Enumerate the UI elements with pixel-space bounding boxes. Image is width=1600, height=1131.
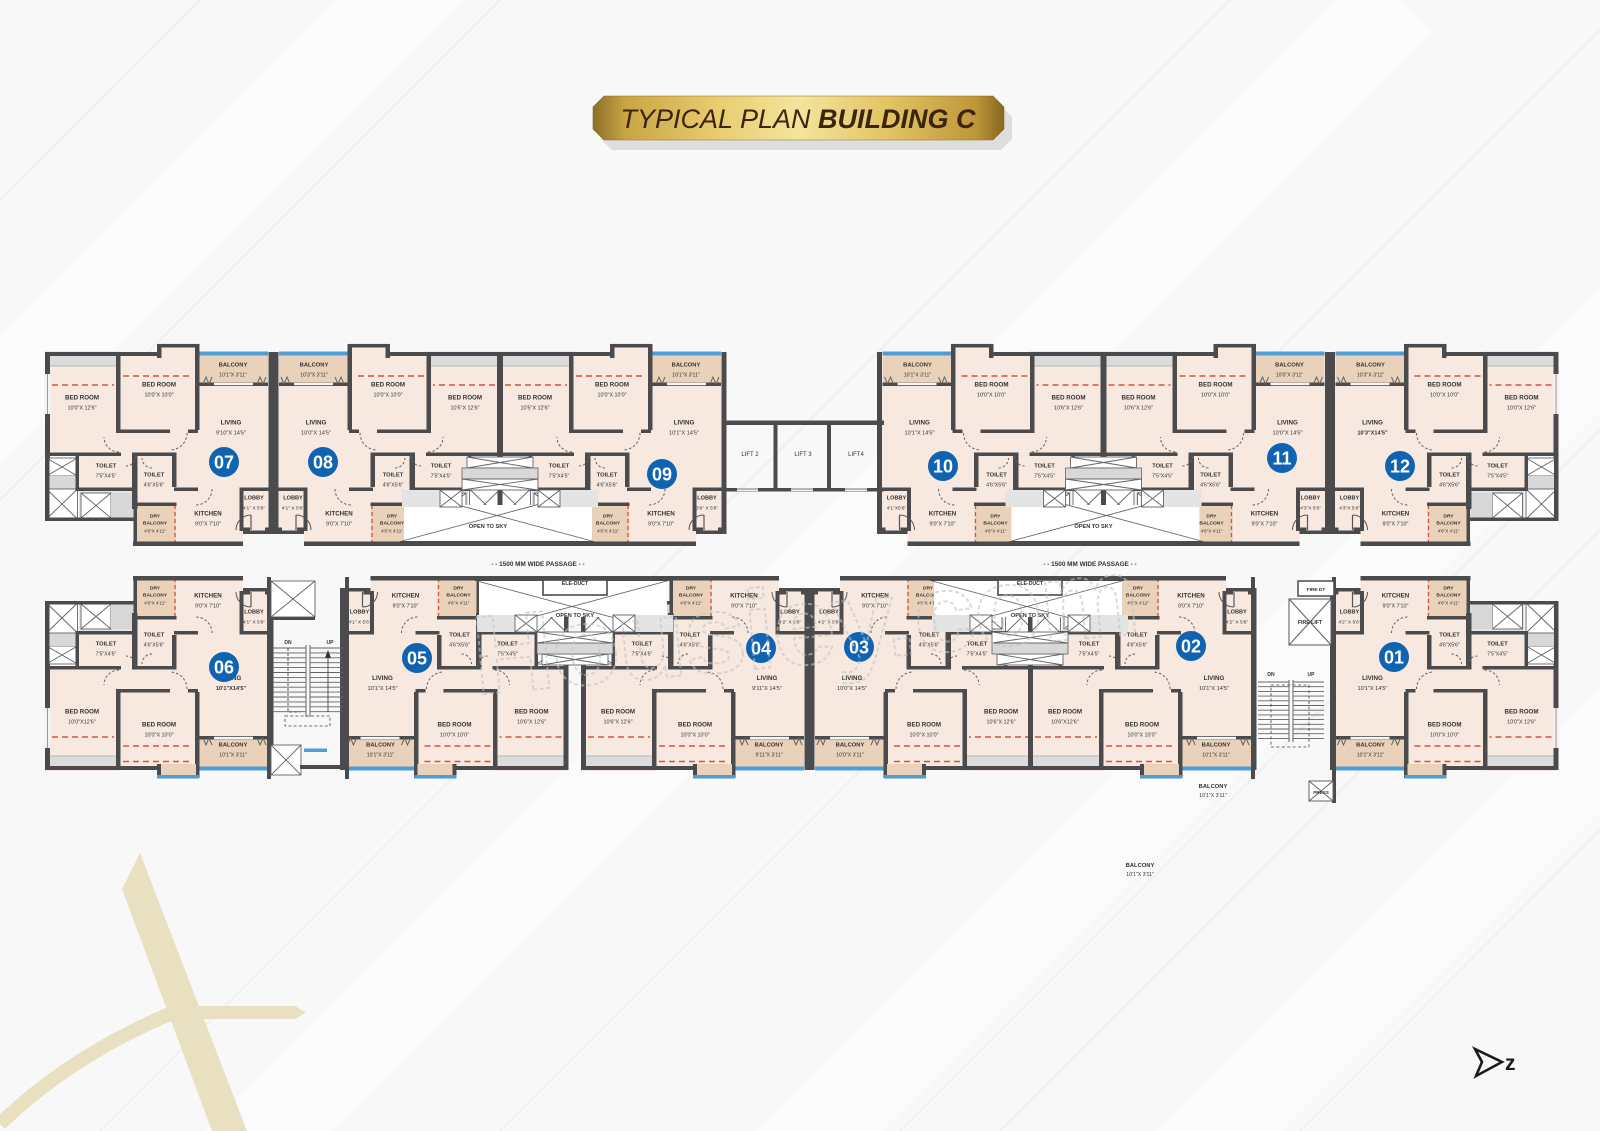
- svg-text:7'5"X4'5": 7'5"X4'5": [1487, 652, 1508, 658]
- svg-text:10'1"X 3'11": 10'1"X 3'11": [1199, 793, 1227, 799]
- svg-text:LOBBY: LOBBY: [1301, 495, 1321, 501]
- svg-text:10'0"X 3'11": 10'0"X 3'11": [1276, 373, 1304, 379]
- svg-text:DRY: DRY: [453, 586, 464, 592]
- svg-text:10'0"X 10'0": 10'0"X 10'0": [374, 393, 403, 399]
- svg-text:4'1" X 5'6": 4'1" X 5'6": [243, 620, 265, 626]
- svg-text:TOILET: TOILET: [1034, 463, 1055, 469]
- svg-text:LIFT 3: LIFT 3: [794, 452, 812, 458]
- svg-text:LIVING: LIVING: [909, 419, 930, 426]
- svg-text:4'6"X5'6": 4'6"X5'6": [144, 643, 165, 649]
- svg-text:4'3"X 5'6": 4'3"X 5'6": [1300, 506, 1321, 512]
- svg-text:LIVING: LIVING: [674, 419, 695, 426]
- svg-text:10'0"X 12'6": 10'0"X 12'6": [1507, 720, 1536, 726]
- svg-text:10'0"X 10'0": 10'0"X 10'0": [681, 733, 710, 739]
- svg-text:BED ROOM: BED ROOM: [1427, 721, 1461, 728]
- svg-text:BED ROOM: BED ROOM: [1198, 381, 1232, 388]
- svg-text:TOILET: TOILET: [449, 632, 470, 638]
- svg-text:OPEN TO SKY: OPEN TO SKY: [469, 524, 507, 530]
- svg-text:BALCONY: BALCONY: [672, 362, 701, 368]
- svg-text:TOILET: TOILET: [597, 472, 618, 478]
- svg-text:BED ROOM: BED ROOM: [518, 394, 552, 401]
- svg-text:LIFT4: LIFT4: [848, 452, 864, 458]
- svg-text:10'0"X 12'6": 10'0"X 12'6": [1507, 406, 1536, 412]
- svg-text:4'6"X 4'11": 4'6"X 4'11": [1201, 529, 1223, 534]
- svg-text:LOBBY: LOBBY: [1340, 495, 1360, 501]
- svg-text:LOBBY: LOBBY: [283, 495, 303, 501]
- svg-text:BED ROOM: BED ROOM: [1121, 394, 1155, 401]
- svg-text:4'6"X 4'11": 4'6"X 4'11": [597, 529, 619, 534]
- svg-text:10'1"X 14'5": 10'1"X 14'5": [904, 431, 934, 437]
- svg-text:TOILET: TOILET: [96, 463, 117, 469]
- svg-text:BALCONY: BALCONY: [1275, 362, 1304, 368]
- svg-text:4'2" X 5'6": 4'2" X 5'6": [1338, 620, 1360, 626]
- svg-text:FIRE DT: FIRE DT: [1307, 587, 1326, 593]
- svg-text:BED ROOM: BED ROOM: [371, 381, 405, 388]
- svg-text:10'0"X 10'0": 10'0"X 10'0": [598, 393, 627, 399]
- svg-text:4'6"X5'6": 4'6"X5'6": [986, 483, 1007, 489]
- svg-text:07: 07: [214, 453, 234, 473]
- svg-text:BED ROOM: BED ROOM: [1504, 708, 1538, 715]
- svg-text:BALCONY: BALCONY: [596, 521, 621, 527]
- svg-text:9'0"X 7'10": 9'0"X 7'10": [1383, 522, 1409, 528]
- svg-text:KITCHEN: KITCHEN: [1177, 592, 1205, 599]
- svg-text:10'1"X 3'11": 10'1"X 3'11": [672, 373, 700, 379]
- svg-text:BALCONY: BALCONY: [755, 742, 784, 748]
- svg-text:BED ROOM: BED ROOM: [448, 394, 482, 401]
- svg-text:10: 10: [933, 457, 953, 477]
- svg-text:10'1"X 3'11": 10'1"X 3'11": [1357, 753, 1385, 759]
- svg-text:z: z: [1505, 1052, 1516, 1075]
- svg-text:10'1"X 14'5": 10'1"X 14'5": [669, 431, 699, 437]
- svg-text:10'0"X 10'0": 10'0"X 10'0": [440, 733, 469, 739]
- svg-text:10'0"X 10'0": 10'0"X 10'0": [1430, 393, 1459, 399]
- svg-text:9'0"X 7'10": 9'0"X 7'10": [195, 522, 221, 528]
- svg-text:10'6"X 12'6": 10'6"X 12'6": [517, 720, 546, 726]
- svg-text:4'6"X 4'11": 4'6"X 4'11": [144, 601, 166, 606]
- svg-text:DRY: DRY: [1443, 514, 1454, 520]
- svg-text:9'0"X 7'10": 9'0"X 7'10": [1383, 604, 1409, 610]
- svg-text:4'1"X5'6": 4'1"X5'6": [887, 506, 907, 512]
- svg-text:10'3"X14'5": 10'3"X14'5": [1357, 431, 1388, 437]
- svg-text:BED ROOM: BED ROOM: [65, 394, 99, 401]
- svg-text:9'0"X 7'10": 9'0"X 7'10": [648, 522, 674, 528]
- svg-text:BED ROOM: BED ROOM: [984, 708, 1018, 715]
- svg-text:4'6"X5'6": 4'6"X5'6": [383, 483, 404, 489]
- svg-text:TOILET: TOILET: [1200, 472, 1221, 478]
- svg-text:LIVING: LIVING: [1362, 675, 1383, 682]
- svg-text:TOILET: TOILET: [1439, 632, 1460, 638]
- svg-text:12: 12: [1390, 457, 1410, 477]
- svg-text:LIVING: LIVING: [1277, 419, 1298, 426]
- svg-text:10'5"X 12'6": 10'5"X 12'6": [451, 406, 480, 412]
- svg-text:BED ROOM: BED ROOM: [907, 721, 941, 728]
- svg-text:10'6"X 12'6": 10'6"X 12'6": [1054, 406, 1083, 412]
- svg-text:BALCONY: BALCONY: [1436, 521, 1461, 527]
- svg-text:DRY: DRY: [603, 514, 614, 520]
- svg-text:10'0"X 10'0": 10'0"X 10'0": [145, 733, 174, 739]
- svg-text:10'6"X12'6": 10'6"X12'6": [1051, 720, 1079, 726]
- svg-text:10'1"X 3'11": 10'1"X 3'11": [904, 373, 932, 379]
- svg-text:TOILET: TOILET: [1439, 472, 1460, 478]
- svg-text:10'0"X 10'0": 10'0"X 10'0": [1128, 733, 1157, 739]
- svg-text:BED ROOM: BED ROOM: [1048, 708, 1082, 715]
- svg-text:4'6"X5'6": 4'6"X5'6": [597, 483, 618, 489]
- svg-text:10'3"X 3'11": 10'3"X 3'11": [1357, 373, 1385, 379]
- svg-text:LOBBY: LOBBY: [887, 495, 907, 501]
- svg-text:08: 08: [313, 453, 333, 473]
- svg-text:4'3"X 5'6": 4'3"X 5'6": [1339, 506, 1360, 512]
- svg-text:DRY: DRY: [387, 514, 398, 520]
- svg-text:4'6"X 4'11": 4'6"X 4'11": [448, 601, 470, 606]
- svg-text:10'1"X 3'11": 10'1"X 3'11": [367, 753, 395, 759]
- svg-text:10'0"X 14'5": 10'0"X 14'5": [301, 431, 331, 437]
- svg-text:LOBBY: LOBBY: [244, 609, 264, 615]
- svg-text:BED ROOM: BED ROOM: [1427, 381, 1461, 388]
- svg-text:10'1"X 3'11": 10'1"X 3'11": [1202, 753, 1230, 759]
- svg-text:9'0"X 7'10": 9'0"X 7'10": [393, 604, 419, 610]
- svg-text:10'1"X 14'5": 10'1"X 14'5": [1199, 686, 1229, 692]
- svg-text:TOILET: TOILET: [144, 472, 165, 478]
- svg-text:TOILET: TOILET: [144, 632, 165, 638]
- svg-text:UP: UP: [1308, 672, 1316, 678]
- svg-text:KITCHEN: KITCHEN: [1251, 510, 1279, 517]
- svg-text:LOBBY: LOBBY: [1340, 609, 1360, 615]
- svg-text:BALCONY: BALCONY: [903, 362, 932, 368]
- svg-text:BED ROOM: BED ROOM: [142, 721, 176, 728]
- svg-text:10'1"X 14'5": 10'1"X 14'5": [1357, 686, 1387, 692]
- svg-text:10'1"X 3'11": 10'1"X 3'11": [219, 753, 247, 759]
- svg-text:DRY: DRY: [1206, 514, 1217, 520]
- svg-text:10'1"X 3'11": 10'1"X 3'11": [219, 373, 247, 379]
- svg-text:10'0"X 14'5": 10'0"X 14'5": [1272, 431, 1302, 437]
- svg-text:KITCHEN: KITCHEN: [1382, 592, 1410, 599]
- svg-text:4'2" X 5'6": 4'2" X 5'6": [1226, 620, 1248, 626]
- svg-text:9'0"X 7'10": 9'0"X 7'10": [930, 522, 956, 528]
- svg-text:BALCONY: BALCONY: [143, 521, 168, 527]
- svg-text:BALCONY: BALCONY: [219, 362, 248, 368]
- svg-text:3'9" X 5'6": 3'9" X 5'6": [696, 506, 718, 512]
- svg-text:KITCHEN: KITCHEN: [194, 510, 222, 517]
- svg-text:4'1" X 5'6": 4'1" X 5'6": [243, 506, 265, 512]
- svg-text:7'5"X4'5": 7'5"X4'5": [549, 474, 570, 480]
- svg-text:BALCONY: BALCONY: [1199, 784, 1228, 790]
- svg-text:BALCONY: BALCONY: [300, 362, 329, 368]
- svg-text:9'0"X 7'10": 9'0"X 7'10": [326, 522, 352, 528]
- svg-text:10'6"X 12'6": 10'6"X 12'6": [1124, 406, 1153, 412]
- svg-text:4'1" X 5'6": 4'1" X 5'6": [348, 620, 370, 626]
- svg-text:BALCONY: BALCONY: [1436, 593, 1461, 599]
- svg-text:4'6"X 4'11": 4'6"X 4'11": [144, 529, 166, 534]
- svg-text:4'6"X 4'11": 4'6"X 4'11": [1438, 529, 1460, 534]
- svg-text:4'6"X 4'11": 4'6"X 4'11": [1438, 601, 1460, 606]
- svg-text:10'0"X 14'5": 10'0"X 14'5": [837, 686, 867, 692]
- svg-text:4'6"X5'6": 4'6"X5'6": [1200, 483, 1221, 489]
- svg-text:LIVING: LIVING: [372, 675, 393, 682]
- svg-text:11: 11: [1272, 449, 1291, 469]
- svg-text:10'6"X 12'6": 10'6"X 12'6": [987, 720, 1016, 726]
- svg-text:9'0"X 7'10": 9'0"X 7'10": [1252, 522, 1278, 528]
- svg-text:BED ROOM: BED ROOM: [595, 381, 629, 388]
- svg-text:FIRE LIFT: FIRE LIFT: [1298, 620, 1323, 626]
- svg-text:10'0"X 10'0": 10'0"X 10'0": [1201, 393, 1230, 399]
- svg-text:BALCONY: BALCONY: [219, 742, 248, 748]
- svg-text:LOBBY: LOBBY: [350, 609, 370, 615]
- svg-text:9'0"X 7'10": 9'0"X 7'10": [1178, 604, 1204, 610]
- svg-text:10'0"X 10'0": 10'0"X 10'0": [145, 393, 174, 399]
- svg-text:4'6"X5'6": 4'6"X5'6": [1439, 643, 1460, 649]
- svg-text:UP: UP: [327, 640, 335, 646]
- svg-text:10'0"X 3'11": 10'0"X 3'11": [836, 753, 864, 759]
- svg-text:KITCHEN: KITCHEN: [194, 592, 222, 599]
- svg-text:TOILET: TOILET: [549, 463, 570, 469]
- svg-text:DRY: DRY: [150, 514, 161, 520]
- svg-text:BED ROOM: BED ROOM: [65, 708, 99, 715]
- svg-text:KITCHEN: KITCHEN: [929, 510, 957, 517]
- svg-text:10'0"X12'6": 10'0"X12'6": [68, 720, 96, 726]
- svg-text:9'11"X 3'11": 9'11"X 3'11": [755, 753, 782, 759]
- svg-text:7'5"X4'5": 7'5"X4'5": [1487, 474, 1508, 480]
- svg-text:KITCHEN: KITCHEN: [325, 510, 353, 517]
- svg-text:9'10"X 14'5": 9'10"X 14'5": [216, 431, 246, 437]
- svg-text:TOILET: TOILET: [431, 463, 452, 469]
- svg-text:BED ROOM: BED ROOM: [678, 721, 712, 728]
- svg-text:BALCONY: BALCONY: [1199, 521, 1224, 527]
- svg-text:09: 09: [652, 465, 672, 485]
- svg-text:BED ROOM: BED ROOM: [974, 381, 1008, 388]
- svg-text:TYPICAL PLAN BUILDING C: TYPICAL PLAN BUILDING C: [620, 104, 976, 134]
- svg-text:4'6"X5'6": 4'6"X5'6": [144, 483, 165, 489]
- svg-text:01: 01: [1384, 648, 1404, 668]
- svg-text:10'0"X 10'0": 10'0"X 10'0": [1430, 733, 1459, 739]
- svg-text:LIVING: LIVING: [1362, 419, 1383, 426]
- svg-text:LIFT 2: LIFT 2: [741, 452, 759, 458]
- svg-text:BED ROOM: BED ROOM: [601, 708, 635, 715]
- svg-text:BED ROOM: BED ROOM: [1125, 721, 1159, 728]
- svg-text:TOILET: TOILET: [1487, 641, 1508, 647]
- svg-text:06: 06: [214, 658, 234, 678]
- svg-text:10'3"X 3'11": 10'3"X 3'11": [300, 373, 328, 379]
- svg-text:BALCONY: BALCONY: [983, 521, 1008, 527]
- svg-text:BALCONY: BALCONY: [1356, 742, 1385, 748]
- svg-text:BALCONY: BALCONY: [380, 521, 405, 527]
- svg-text:7'5"X4'5": 7'5"X4'5": [1034, 474, 1055, 480]
- svg-text:7'5"X4'5": 7'5"X4'5": [96, 474, 117, 480]
- svg-text:4'6"X5'6": 4'6"X5'6": [1439, 483, 1460, 489]
- svg-text:BED ROOM: BED ROOM: [1051, 394, 1085, 401]
- svg-text:TOILET: TOILET: [96, 641, 117, 647]
- svg-text:05: 05: [407, 649, 427, 669]
- svg-text:BALCONY: BALCONY: [836, 742, 865, 748]
- svg-text:10'0"X 10'0": 10'0"X 10'0": [977, 393, 1006, 399]
- svg-text:TOILET: TOILET: [986, 472, 1007, 478]
- svg-text:BED ROOM: BED ROOM: [437, 721, 471, 728]
- svg-text:10'6"X 12'6": 10'6"X 12'6": [604, 720, 633, 726]
- svg-text:10'5"X 12'6": 10'5"X 12'6": [521, 406, 550, 412]
- svg-text:OPEN TO SKY: OPEN TO SKY: [1074, 524, 1112, 530]
- svg-text:KITCHEN: KITCHEN: [647, 510, 675, 517]
- svg-text:4'6"X 4'11": 4'6"X 4'11": [381, 529, 403, 534]
- svg-text:7'5"X4'5": 7'5"X4'5": [431, 474, 452, 480]
- svg-text:02: 02: [1181, 637, 1201, 657]
- svg-text:LIVING: LIVING: [306, 419, 327, 426]
- svg-text:7'5"X4'5": 7'5"X4'5": [1152, 474, 1173, 480]
- svg-text:KITCHEN: KITCHEN: [392, 592, 420, 599]
- svg-text:4'6"X 4'11": 4'6"X 4'11": [985, 529, 1007, 534]
- svg-text:DN: DN: [284, 640, 292, 646]
- svg-text:4'1" X 5'6": 4'1" X 5'6": [282, 506, 304, 512]
- svg-text:10'0"X 10'0": 10'0"X 10'0": [910, 733, 939, 739]
- svg-text:DRY: DRY: [150, 586, 161, 592]
- svg-text:10'0"X 12'6": 10'0"X 12'6": [68, 406, 97, 412]
- svg-text:9'0"X 7'10": 9'0"X 7'10": [195, 604, 221, 610]
- svg-text:BALCONY: BALCONY: [1356, 362, 1385, 368]
- svg-text:LIVING: LIVING: [221, 419, 242, 426]
- svg-text:LOBBY: LOBBY: [1227, 609, 1247, 615]
- svg-text:7'5"X4'5": 7'5"X4'5": [96, 652, 117, 658]
- svg-text:10'1"X 14'5": 10'1"X 14'5": [367, 686, 397, 692]
- svg-text:- - 1500 MM WIDE PASSAGE - -: - - 1500 MM WIDE PASSAGE - -: [491, 561, 584, 568]
- svg-text:BALCONY: BALCONY: [366, 742, 395, 748]
- svg-text:BED ROOM: BED ROOM: [142, 381, 176, 388]
- svg-text:TOILET: TOILET: [383, 472, 404, 478]
- svg-text:DRY: DRY: [1443, 586, 1454, 592]
- svg-text:TOILET: TOILET: [1152, 463, 1173, 469]
- svg-text:BALCONY: BALCONY: [1126, 863, 1155, 869]
- svg-text:BED ROOM: BED ROOM: [1504, 394, 1538, 401]
- svg-text:TOILET: TOILET: [1487, 463, 1508, 469]
- svg-text:DN: DN: [1267, 672, 1275, 678]
- svg-text:KITCHEN: KITCHEN: [1382, 510, 1410, 517]
- svg-text:BALCONY: BALCONY: [1202, 742, 1231, 748]
- svg-text:DRY: DRY: [990, 514, 1001, 520]
- svg-text:PRESS: PRESS: [1313, 790, 1329, 795]
- svg-text:LOBBY: LOBBY: [697, 495, 717, 501]
- svg-text:10'1"X14'5": 10'1"X14'5": [216, 686, 247, 692]
- svg-text:LOBBY: LOBBY: [244, 495, 264, 501]
- svg-text:4'6"X5'6": 4'6"X5'6": [449, 643, 470, 649]
- svg-text:10'1"X 3'11": 10'1"X 3'11": [1126, 872, 1154, 878]
- svg-text:BALCONY: BALCONY: [143, 593, 168, 599]
- svg-text:LIVING: LIVING: [1204, 675, 1225, 682]
